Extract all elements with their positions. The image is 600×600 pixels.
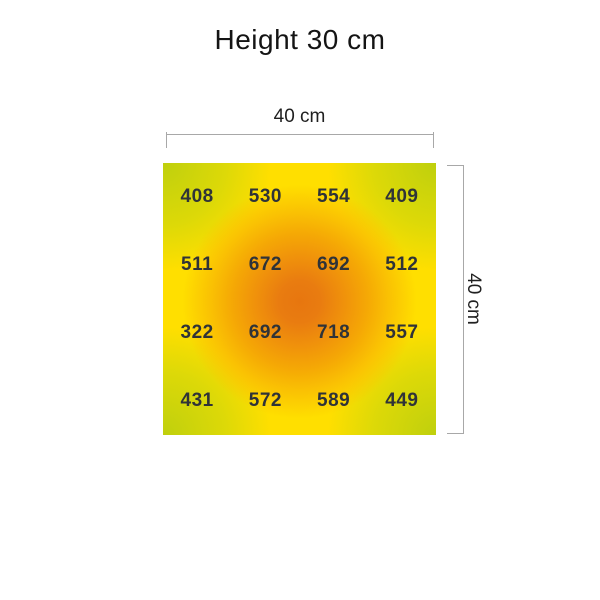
heatmap-cell: 512 <box>368 231 436 299</box>
heatmap-cell: 322 <box>163 299 231 367</box>
heatmap-cell: 572 <box>231 367 299 435</box>
heatmap-cell: 672 <box>231 231 299 299</box>
heatmap-cell: 511 <box>163 231 231 299</box>
heatmap-cell: 409 <box>368 163 436 231</box>
ppfd-heatmap-figure: Height 30 cm 40 cm 40 cm 408 530 554 409… <box>0 0 600 600</box>
heatmap-cell: 530 <box>231 163 299 231</box>
heatmap-grid: 408 530 554 409 511 672 692 512 322 692 … <box>163 163 436 435</box>
heatmap-cell: 589 <box>300 367 368 435</box>
heatmap-cell: 431 <box>163 367 231 435</box>
heatmap-cell: 449 <box>368 367 436 435</box>
width-dimension-tick-left <box>166 132 167 148</box>
width-dimension-label: 40 cm <box>163 106 436 128</box>
heatmap-cell: 718 <box>300 299 368 367</box>
height-dimension-tick-top <box>447 165 464 166</box>
heatmap-cell: 408 <box>163 163 231 231</box>
height-dimension-label: 40 cm <box>464 259 484 339</box>
chart-title: Height 30 cm <box>0 24 600 56</box>
height-dimension-tick-bottom <box>447 433 464 434</box>
heatmap-cell: 554 <box>300 163 368 231</box>
heatmap-cell: 692 <box>300 231 368 299</box>
heatmap-cell: 557 <box>368 299 436 367</box>
width-dimension-line <box>166 134 434 135</box>
heatmap-cell: 692 <box>231 299 299 367</box>
width-dimension-tick-right <box>433 132 434 148</box>
